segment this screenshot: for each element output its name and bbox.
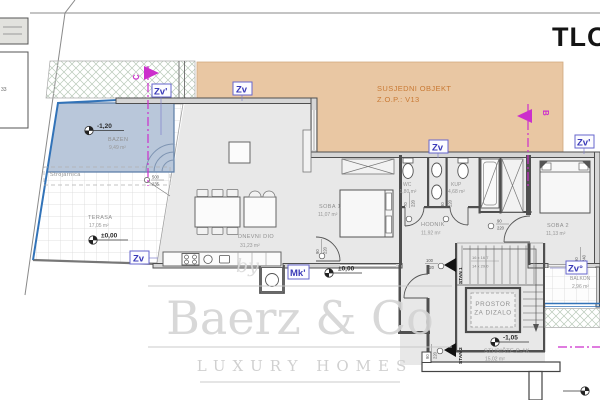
stairs-dim-1: 16 x 16,7 xyxy=(472,255,489,260)
svg-text:90: 90 xyxy=(315,249,320,254)
kup-label: KUP xyxy=(451,182,462,188)
hodnik-label: HODNIK xyxy=(421,222,445,228)
section-label-c: C xyxy=(132,74,141,80)
soba2-label: SOBA 2 xyxy=(547,223,569,229)
entrance-label-stan2: STAN 2 xyxy=(458,347,464,364)
hodnik-area: 11,92 m² xyxy=(421,231,441,237)
terrace-label: TERASA xyxy=(88,215,112,221)
entrance-label-stan1: STAN 1 xyxy=(458,267,464,284)
washbasin xyxy=(432,185,442,199)
living-area: 31,23 m² xyxy=(240,243,260,249)
soba1-label: SOBA 1 xyxy=(319,204,341,210)
drawing-title: TLOCRT xyxy=(552,22,600,52)
stair-area: 15,02 m² xyxy=(485,357,505,363)
svg-text:80: 80 xyxy=(440,202,445,207)
dim-terasa-w: 500 xyxy=(152,175,160,180)
marker-zv-deg: Zv° xyxy=(568,264,583,275)
terrace-level: ±0,00 xyxy=(101,233,118,240)
washbasin xyxy=(432,163,442,177)
dim-stan1-door-h: 220 xyxy=(427,265,435,270)
elevator-label-1: PROSTOR xyxy=(475,301,510,308)
marker-zv-left: Zv xyxy=(133,254,145,265)
marker-zv-top: Zv xyxy=(236,85,248,96)
pillow xyxy=(386,216,392,233)
toilet xyxy=(458,164,468,179)
dim-soba2-door-w: 90 xyxy=(497,219,502,224)
pool-area: 9,49 m² xyxy=(109,145,126,151)
dim-terasa-h: 235 xyxy=(152,182,160,187)
soba2-area: 11,13 m² xyxy=(546,231,566,237)
dim-stan1-door-w: 100 xyxy=(426,258,434,263)
dining-table xyxy=(195,197,240,227)
svg-text:70: 70 xyxy=(403,202,408,207)
strojarnica-label: Strojarnica xyxy=(50,172,81,178)
legend-boxes: 33 xyxy=(0,18,28,128)
marker-zv-center: Zv xyxy=(432,143,444,154)
dim-soba2-door-h: 220 xyxy=(497,226,505,231)
living-level: ±0,00 xyxy=(338,266,355,273)
wc-area: 1,80 m² xyxy=(400,189,417,195)
watermark-tagline: LUXURY HOMES xyxy=(197,357,414,375)
svg-text:220: 220 xyxy=(411,199,416,207)
living-label: DNEVNI DIO xyxy=(238,234,274,240)
neighbor-label-2: Z.O.P.: V13 xyxy=(377,95,420,104)
kitchen-island xyxy=(244,197,276,227)
pool-level: -1,20 xyxy=(97,123,112,130)
soba1-area: 11,07 m² xyxy=(318,212,338,218)
svg-text:220: 220 xyxy=(323,246,328,254)
svg-text:220: 220 xyxy=(448,199,453,207)
balcony-label: BALKON xyxy=(570,276,591,282)
toilet xyxy=(403,164,413,179)
stair-label: STUBIŠTE P-1K xyxy=(484,348,530,355)
bedroom2-furniture xyxy=(540,161,590,213)
floor-plan-drawing: 33 SUSJEDNI OBJEKT Z.O.P.: V13 xyxy=(0,0,600,400)
wc-label: WC xyxy=(403,182,412,188)
sink-basin xyxy=(220,256,230,264)
pillow xyxy=(386,193,392,210)
watermark-by: by xyxy=(236,255,259,277)
section-label-b: B xyxy=(541,110,550,116)
balcony-area: 2,96 m² xyxy=(572,284,589,290)
svg-text:90: 90 xyxy=(425,354,430,359)
hatch-strip xyxy=(46,61,195,99)
legend-side-label: 33 xyxy=(1,87,7,93)
marker-mk: Mk' xyxy=(290,268,305,279)
side-table xyxy=(229,142,250,163)
floor-plan-page: 33 SUSJEDNI OBJEKT Z.O.P.: V13 xyxy=(0,0,600,400)
pool-label: BAZEN xyxy=(108,137,128,143)
marker-zv-prime-tl: Zv' xyxy=(154,87,167,98)
bedroom1-furniture xyxy=(340,159,394,237)
marker-zv-prime-tr: Zv' xyxy=(577,138,590,149)
elevator-label-2: ZA DIZALO xyxy=(474,310,512,317)
stairs-dim-2: 14 x 29,0 xyxy=(472,264,489,269)
neighbor-label-1: SUSJEDNI OBJEKT xyxy=(377,84,451,93)
sideboard xyxy=(303,130,311,172)
stair-level: -1,05 xyxy=(503,335,518,342)
terrace-area: 17,05 m² xyxy=(89,223,109,229)
washing-machine xyxy=(262,268,283,292)
kup-area: 4,68 m² xyxy=(448,189,465,195)
sink xyxy=(204,255,212,263)
svg-text:220: 220 xyxy=(433,351,438,359)
watermark-brand: Baerz & Co xyxy=(166,291,434,345)
